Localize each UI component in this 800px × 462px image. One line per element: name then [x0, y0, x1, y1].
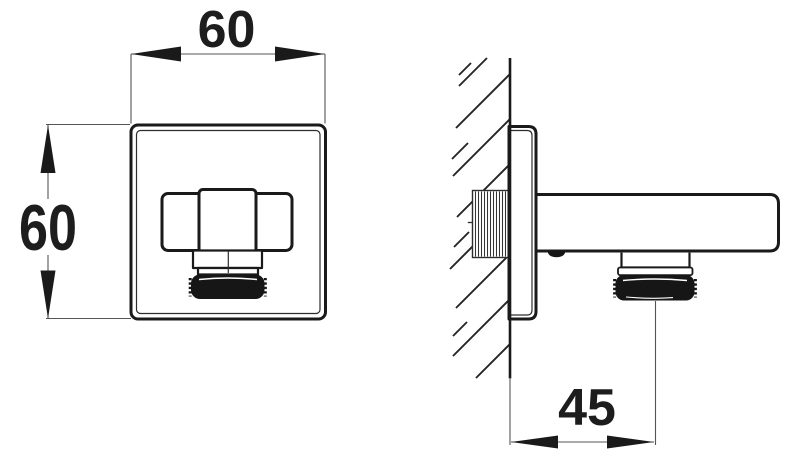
shower-arm	[536, 195, 779, 258]
arrowhead-left-icon	[131, 47, 181, 62]
side-view: 45	[450, 58, 779, 449]
arm-outline	[536, 195, 779, 252]
dimension-wall-offset: 45	[510, 301, 656, 449]
mounting-plate-side	[509, 127, 536, 320]
outlet-neck	[193, 251, 262, 269]
hex-nut-center-face	[199, 190, 256, 254]
arrowhead-right-icon	[275, 47, 325, 62]
arrowhead-down-icon	[41, 271, 56, 319]
threaded-outlet-side	[615, 253, 696, 301]
wall-inlet-thread	[468, 191, 514, 258]
dimension-label-height: 60	[19, 191, 77, 264]
arrowhead-right-icon	[607, 436, 654, 449]
dimension-front-width: 60	[131, 1, 325, 124]
threaded-outlet-front	[190, 275, 265, 300]
technical-drawing-canvas: 60 60	[0, 0, 800, 462]
shower-outlet-drawing: 60 60	[0, 0, 800, 462]
dimension-label-offset: 45	[558, 379, 616, 437]
arm-underside-detent	[548, 251, 566, 257]
arrowhead-left-icon	[511, 436, 558, 449]
front-view: 60 60	[19, 1, 326, 319]
dimension-front-height: 60	[19, 125, 131, 319]
outlet-neck-side	[622, 253, 690, 268]
dimension-label-width: 60	[198, 1, 256, 59]
arrowhead-up-icon	[41, 125, 56, 173]
outlet-collar	[618, 268, 693, 276]
